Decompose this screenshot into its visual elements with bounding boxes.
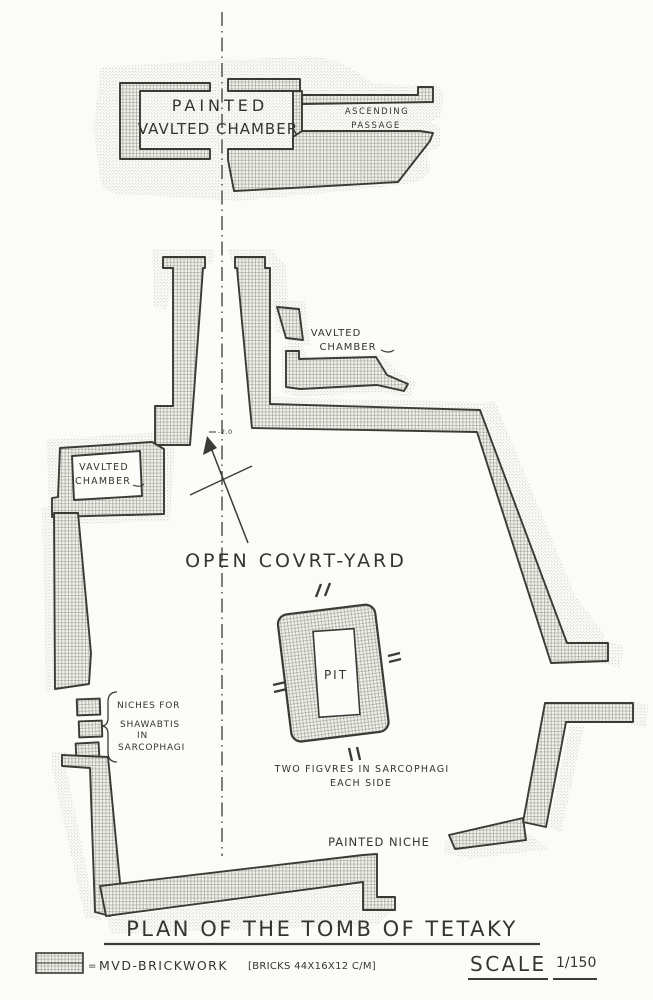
- north-arrow-shaft: [208, 440, 248, 543]
- pit-note-1: TWO FIGVRES IN SARCOPHAGI: [274, 764, 450, 775]
- west-courtyard-wall: [54, 513, 91, 689]
- right-chamber-wall-fragment: [277, 307, 303, 340]
- north-arrow: -2.0: [190, 428, 252, 543]
- niche-rect: [77, 699, 101, 716]
- courtyard-label: OPEN COVRT-YARD: [185, 550, 407, 572]
- niches-label-3: IN: [137, 731, 148, 741]
- niches-brace: [101, 692, 117, 762]
- pit-label: PIT: [324, 668, 348, 682]
- niches-label-4: SARCOPHAGI: [118, 743, 185, 753]
- north-arrow-head: [203, 436, 217, 455]
- legend-bricks-note: [BRICKS 44X16X12 C/M]: [248, 961, 376, 972]
- tick-east: [388, 653, 401, 662]
- burial-chamber-label-2: VAVLTED CHAMBER: [138, 120, 298, 138]
- plan-title: PLAN OF THE TOMB OF TETAKY: [126, 917, 518, 941]
- ascending-passage-label-1: ASCENDING: [345, 107, 409, 117]
- right-chamber-label-2: CHAMBER: [319, 342, 376, 353]
- se-z-wall: [523, 703, 633, 827]
- ascending-passage-label-2: PASSAGE: [351, 121, 400, 131]
- level-mark-label: -2.0: [218, 428, 233, 436]
- north-arrow-crossline: [190, 466, 252, 495]
- tick-north: [316, 583, 330, 597]
- tick-south: [349, 747, 360, 761]
- burial-chamber-wall-top-right: [228, 79, 300, 91]
- left-chamber-label-2: CHAMBER: [75, 476, 131, 487]
- label-flourish: [381, 350, 394, 352]
- legend-brickwork-label: MVD-BRICKWORK: [99, 958, 228, 973]
- niche-rect: [79, 721, 103, 738]
- legend-equals: =: [88, 961, 97, 972]
- right-chamber-label-1: VAVLTED: [311, 328, 362, 339]
- scale-label: SCALE: [470, 952, 547, 976]
- plan-sheet: -2.0 PAINTED VAVLTED CHAMBER ASCENDING P…: [0, 0, 653, 1000]
- tomb-plan-drawing: -2.0 PAINTED VAVLTED CHAMBER ASCENDING P…: [0, 0, 653, 1000]
- painted-niche-label: PAINTED NICHE: [328, 835, 430, 849]
- left-chamber-label-1: VAVLTED: [79, 462, 129, 473]
- niches-label-1: NICHES FOR: [117, 701, 180, 711]
- scale-value: 1/150: [556, 955, 596, 971]
- niches-label-2: SHAWABTIS: [120, 720, 180, 730]
- pit-note-2: EACH SIDE: [330, 778, 392, 789]
- burial-chamber-label-1: PAINTED: [172, 96, 268, 115]
